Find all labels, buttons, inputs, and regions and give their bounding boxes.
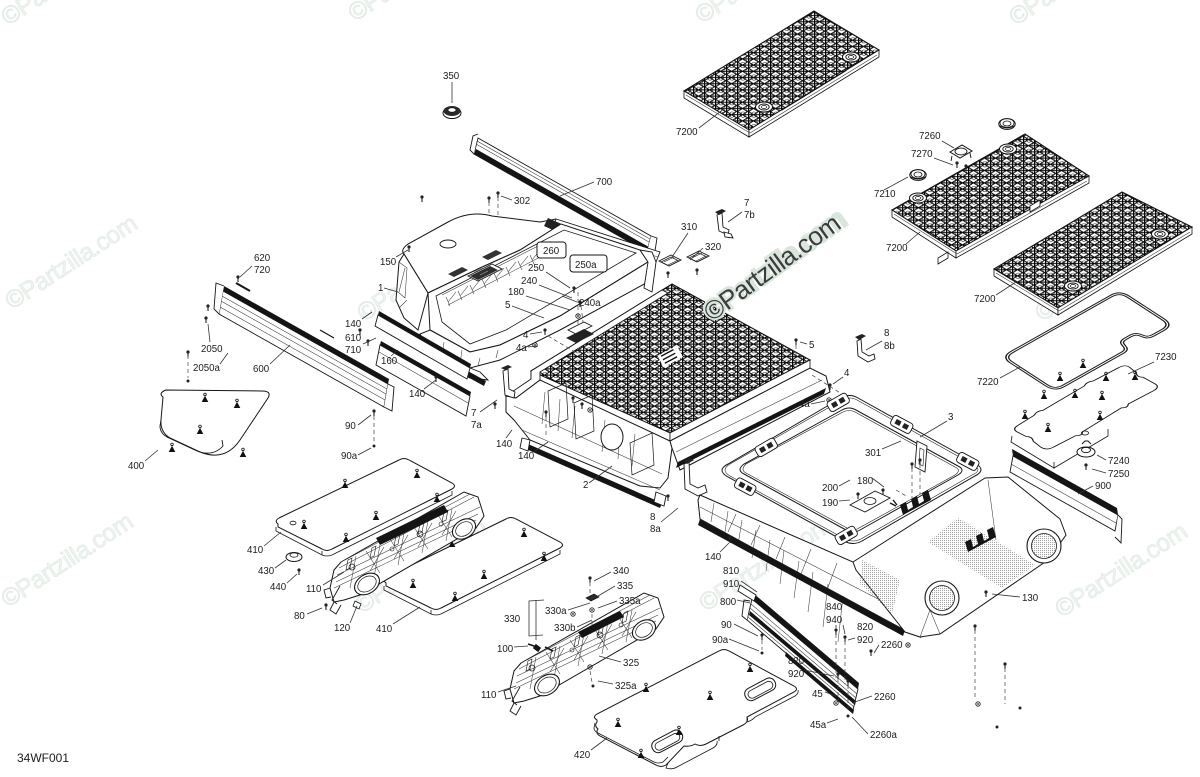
svg-text:301: 301	[865, 448, 881, 459]
svg-text:7b: 7b	[744, 210, 755, 221]
svg-text:325a: 325a	[615, 681, 637, 692]
svg-text:90a: 90a	[712, 635, 729, 646]
svg-text:7220: 7220	[977, 377, 999, 388]
svg-text:140: 140	[496, 439, 513, 450]
svg-text:7230: 7230	[1155, 352, 1177, 363]
svg-text:1: 1	[378, 283, 383, 294]
svg-text:160: 160	[381, 356, 398, 367]
svg-text:335: 335	[617, 581, 633, 592]
svg-text:900: 900	[1095, 481, 1112, 492]
svg-text:2260a: 2260a	[870, 730, 898, 741]
svg-text:180: 180	[508, 287, 525, 298]
svg-text:340: 340	[613, 566, 630, 577]
svg-text:4a: 4a	[799, 399, 810, 410]
svg-text:150: 150	[380, 257, 397, 268]
svg-text:820: 820	[857, 622, 874, 633]
svg-text:710: 710	[345, 345, 362, 356]
svg-text:240a: 240a	[579, 298, 601, 309]
svg-text:45a: 45a	[810, 720, 827, 731]
svg-text:140: 140	[518, 451, 535, 462]
svg-text:840: 840	[826, 602, 843, 613]
svg-text:5: 5	[809, 340, 814, 351]
svg-text:8: 8	[650, 512, 655, 523]
svg-text:810: 810	[723, 566, 740, 577]
svg-text:330: 330	[504, 614, 521, 625]
svg-text:7270: 7270	[911, 149, 933, 160]
svg-text:240: 240	[521, 276, 538, 287]
svg-text:2: 2	[583, 480, 588, 491]
svg-text:140: 140	[409, 389, 426, 400]
svg-text:7200: 7200	[974, 294, 996, 305]
svg-text:8a: 8a	[650, 524, 661, 535]
svg-text:250: 250	[528, 263, 545, 274]
svg-text:920: 920	[857, 635, 874, 646]
svg-text:600: 600	[253, 364, 270, 375]
svg-text:330a: 330a	[545, 606, 567, 617]
svg-text:2050: 2050	[201, 344, 223, 355]
svg-text:330b: 330b	[554, 623, 576, 634]
svg-text:4a: 4a	[516, 343, 527, 354]
svg-text:410: 410	[247, 545, 264, 556]
svg-text:7240: 7240	[1108, 456, 1130, 467]
svg-text:80: 80	[294, 611, 305, 622]
svg-text:440: 440	[270, 582, 287, 593]
svg-text:8: 8	[884, 328, 889, 339]
svg-text:940: 940	[826, 615, 843, 626]
svg-text:3: 3	[948, 412, 953, 423]
svg-text:7200: 7200	[886, 243, 908, 254]
svg-text:920: 920	[788, 669, 805, 680]
svg-text:45: 45	[812, 689, 823, 700]
svg-text:34WF001: 34WF001	[17, 751, 69, 765]
svg-text:180: 180	[857, 476, 874, 487]
svg-text:90a: 90a	[341, 451, 358, 462]
svg-text:800: 800	[720, 597, 737, 608]
svg-text:910: 910	[723, 579, 740, 590]
svg-text:335a: 335a	[619, 596, 641, 607]
svg-text:7: 7	[471, 408, 476, 419]
svg-text:7250: 7250	[1108, 469, 1130, 480]
svg-text:2260: 2260	[881, 640, 903, 651]
svg-text:140: 140	[705, 552, 722, 563]
svg-text:120: 120	[334, 623, 351, 634]
svg-text:700: 700	[596, 177, 613, 188]
svg-text:4: 4	[844, 368, 850, 379]
svg-text:4: 4	[523, 330, 529, 341]
svg-text:2260: 2260	[874, 692, 896, 703]
svg-text:325: 325	[623, 658, 639, 669]
svg-text:302: 302	[514, 196, 530, 207]
svg-text:90: 90	[345, 421, 356, 432]
svg-text:8b: 8b	[884, 341, 895, 352]
svg-text:350: 350	[443, 71, 460, 82]
svg-text:110: 110	[306, 584, 322, 595]
svg-text:90: 90	[721, 620, 732, 631]
svg-text:5: 5	[505, 300, 510, 311]
svg-text:260: 260	[543, 246, 560, 257]
svg-text:420: 420	[574, 750, 591, 761]
svg-text:310: 310	[681, 222, 698, 233]
svg-text:430: 430	[258, 566, 275, 577]
svg-text:130: 130	[1022, 593, 1039, 604]
svg-text:7210: 7210	[874, 189, 896, 200]
svg-text:2050a: 2050a	[193, 363, 221, 374]
svg-text:410: 410	[376, 624, 393, 635]
svg-text:140: 140	[345, 319, 362, 330]
svg-text:7260: 7260	[919, 131, 941, 142]
svg-text:7a: 7a	[471, 420, 482, 431]
svg-text:200: 200	[822, 483, 839, 494]
svg-text:110: 110	[481, 690, 497, 701]
svg-text:250a: 250a	[575, 260, 597, 271]
svg-text:820: 820	[788, 656, 805, 667]
svg-text:190: 190	[822, 498, 839, 509]
svg-text:7200: 7200	[676, 127, 698, 138]
svg-text:400: 400	[128, 461, 145, 472]
svg-text:7: 7	[744, 198, 749, 209]
svg-text:720: 720	[254, 265, 271, 276]
svg-text:100: 100	[497, 644, 514, 655]
svg-text:610: 610	[345, 333, 362, 344]
svg-text:620: 620	[254, 253, 271, 264]
svg-text:320: 320	[705, 242, 722, 253]
